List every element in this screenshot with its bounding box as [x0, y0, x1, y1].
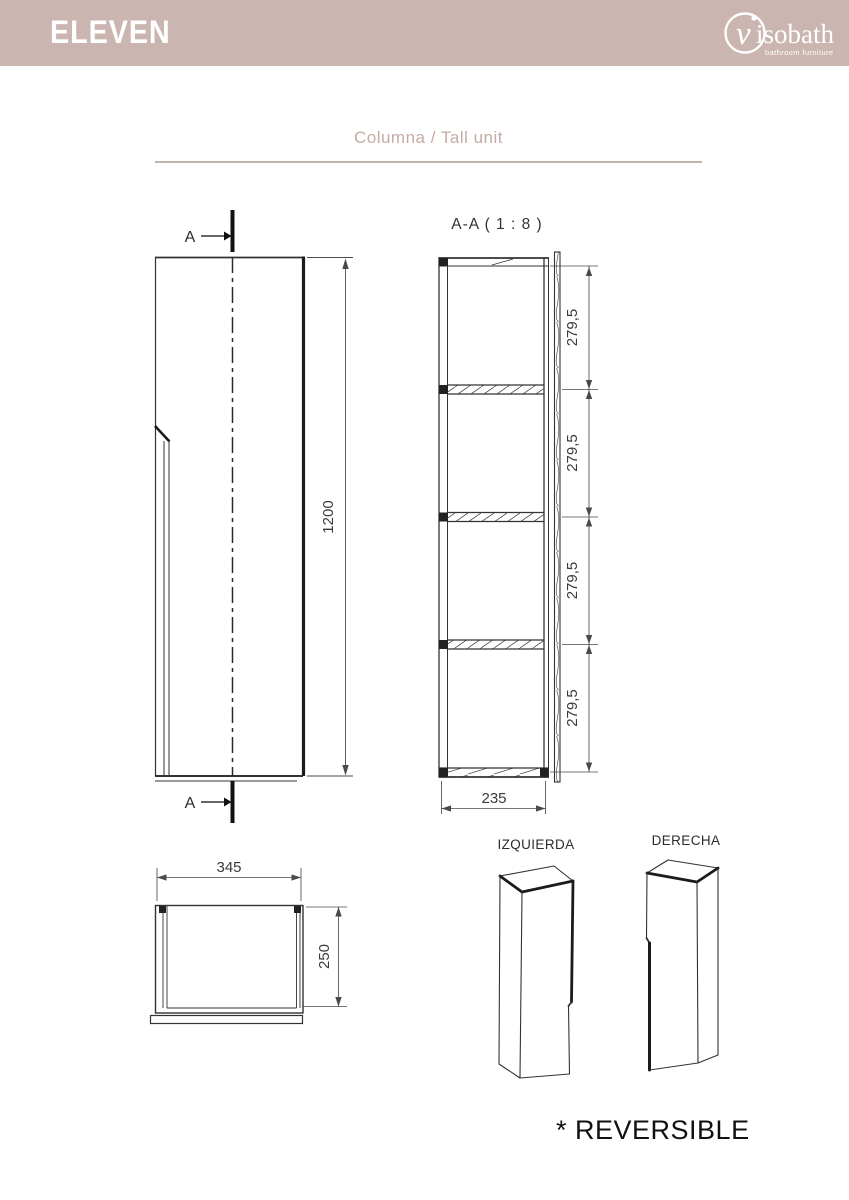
- shelf-height-value-1: 279,5: [564, 309, 581, 347]
- iso-left-label: IZQUIERDA: [497, 837, 574, 852]
- shelf-height-value-4: 279,5: [564, 689, 581, 727]
- plan-corner-left: [159, 906, 166, 913]
- iso-view-left: [499, 866, 573, 1078]
- cut-label-top: A: [185, 229, 196, 246]
- section-door-panel: [555, 252, 561, 782]
- plan-outline: [156, 906, 304, 1014]
- cut-arrow-head-top: [224, 232, 232, 241]
- reversible-note: * REVERSIBLE: [556, 1115, 750, 1145]
- front-height-value: 1200: [320, 500, 337, 533]
- handle-notch: [155, 426, 170, 442]
- plan-depth-value: 250: [316, 944, 333, 969]
- section-shelf-1: [439, 385, 544, 394]
- section-view-label: A-A ( 1 : 8 ): [451, 216, 542, 233]
- spec-sheet-page: ELEVEN v isobath bathroom furniture Colu…: [0, 0, 849, 1200]
- shelf-height-value-3: 279,5: [564, 562, 581, 600]
- shelf-height-value-2: 279,5: [564, 434, 581, 472]
- section-top-hatch: [492, 259, 513, 265]
- iso-view-right: [647, 860, 719, 1070]
- section-top-left-block: [439, 258, 448, 266]
- section-bottom-panel: [439, 768, 550, 777]
- cut-label-bottom: A: [185, 795, 196, 812]
- section-width-value: 235: [481, 790, 506, 807]
- plan-width-value: 345: [216, 859, 241, 876]
- plan-door-strip: [151, 1016, 303, 1024]
- technical-drawing: A A 1200 A-A ( 1 : 8 ): [0, 0, 849, 1200]
- iso-right-label: DERECHA: [652, 833, 721, 848]
- section-shelf-3: [439, 640, 544, 649]
- section-shelf-2: [439, 513, 544, 522]
- plan-corner-right: [294, 906, 301, 913]
- cut-arrow-head-bottom: [224, 798, 232, 807]
